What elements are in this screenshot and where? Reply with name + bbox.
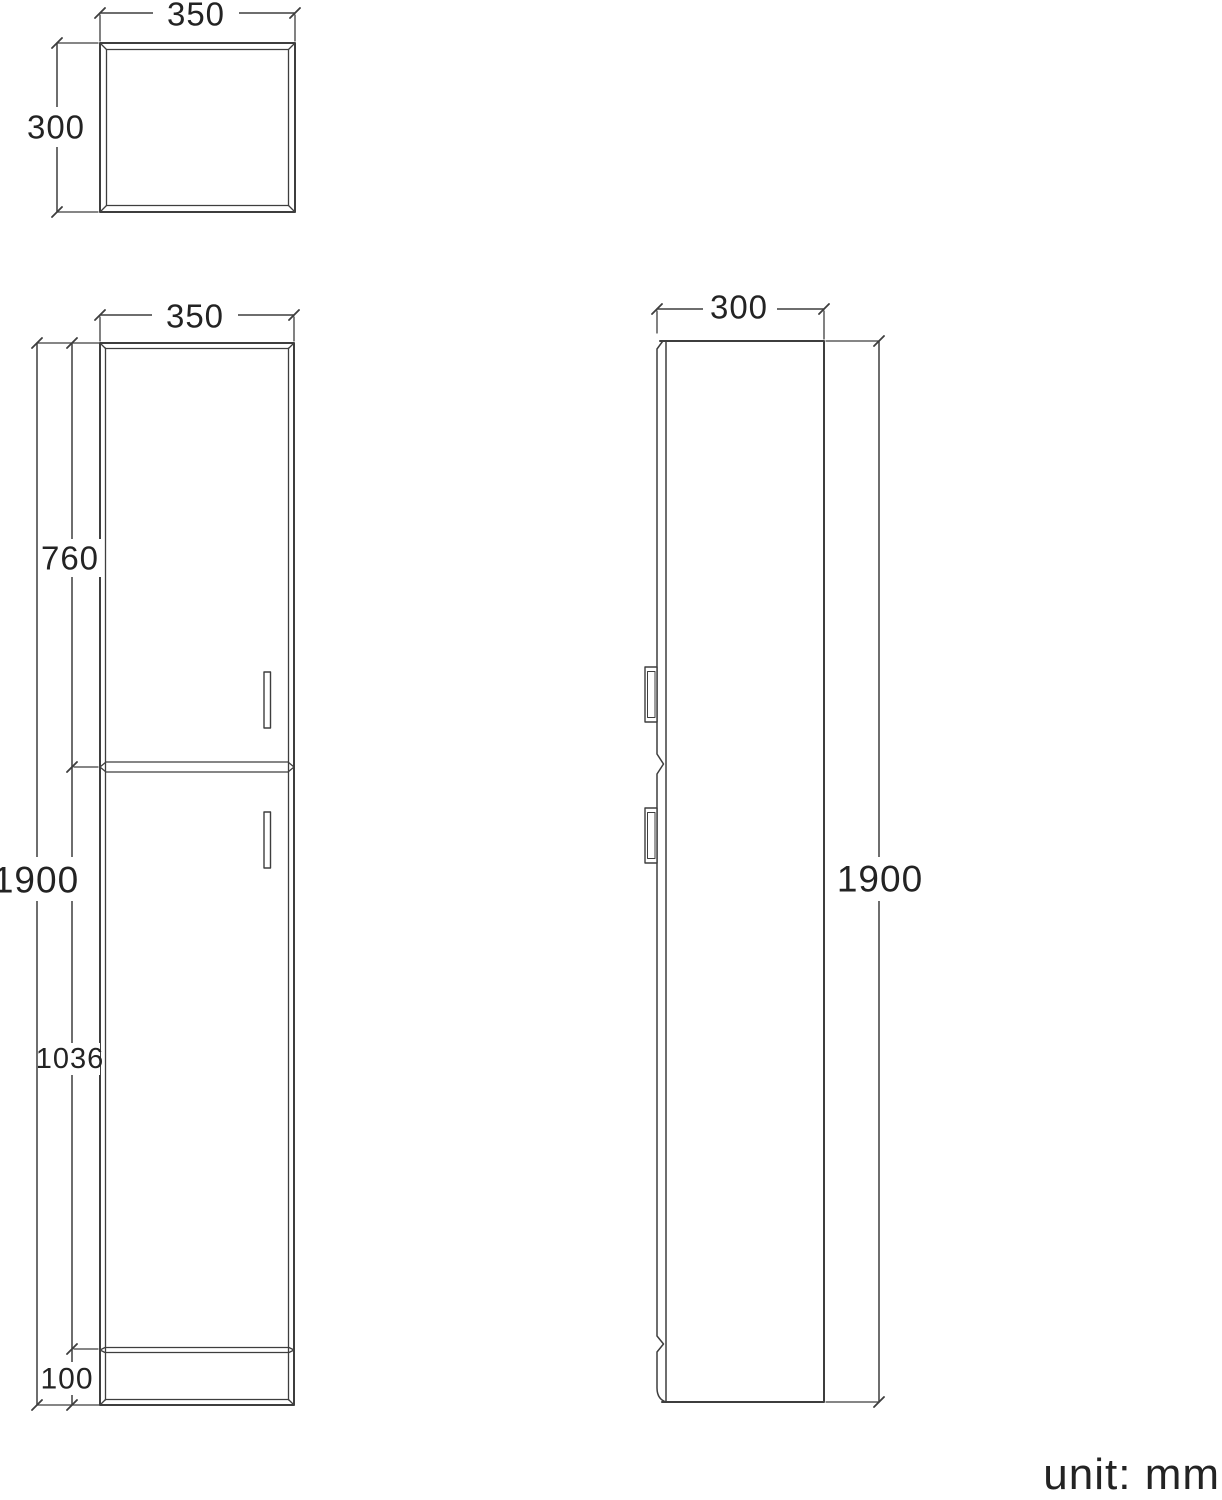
front-view-upper-door-height-label: 760 — [41, 540, 99, 577]
top-view-width-label: 350 — [167, 0, 225, 33]
front-view-plinth-height-label: 100 — [40, 1363, 93, 1396]
upper-door-handle — [264, 672, 271, 728]
top-view-inner-edge — [107, 50, 289, 206]
front-view-door-divider — [100, 762, 294, 772]
side-view-height-label: 1900 — [837, 859, 923, 900]
top-view — [57, 13, 295, 212]
top-view-depth-label: 300 — [27, 109, 85, 146]
dimension-labels: 350 300 350 1900 760 1036 100 300 1900 u… — [0, 0, 1220, 1499]
side-view-outline — [660, 341, 824, 1402]
unit-note: unit: mm — [1043, 1450, 1220, 1499]
front-view-inner-edges — [106, 348, 289, 1400]
label-backgrounds — [0, 0, 920, 1395]
dimension-tick-marks — [32, 8, 884, 1410]
side-view — [645, 309, 879, 1402]
front-view-corner-chamfers — [100, 343, 294, 1405]
top-view-outline — [100, 43, 295, 212]
drawing-linework — [32, 8, 884, 1410]
cabinet-dimension-drawing: 350 300 350 1900 760 1036 100 300 1900 u… — [0, 0, 1222, 1500]
top-view-corner-chamfers — [100, 43, 295, 212]
lower-door-handle — [264, 812, 271, 868]
technical-drawing-page: 350 300 350 1900 760 1036 100 300 1900 u… — [0, 0, 1222, 1500]
front-view-plinth-edge — [100, 1348, 294, 1353]
front-view-lower-door-height-label: 1036 — [36, 1043, 105, 1075]
front-view-outline — [100, 343, 294, 1405]
side-view-depth-label: 300 — [710, 289, 768, 326]
front-view-overall-height-label: 1900 — [0, 860, 79, 901]
front-view-width-label: 350 — [166, 298, 224, 335]
side-view-door-profile — [657, 342, 666, 1403]
